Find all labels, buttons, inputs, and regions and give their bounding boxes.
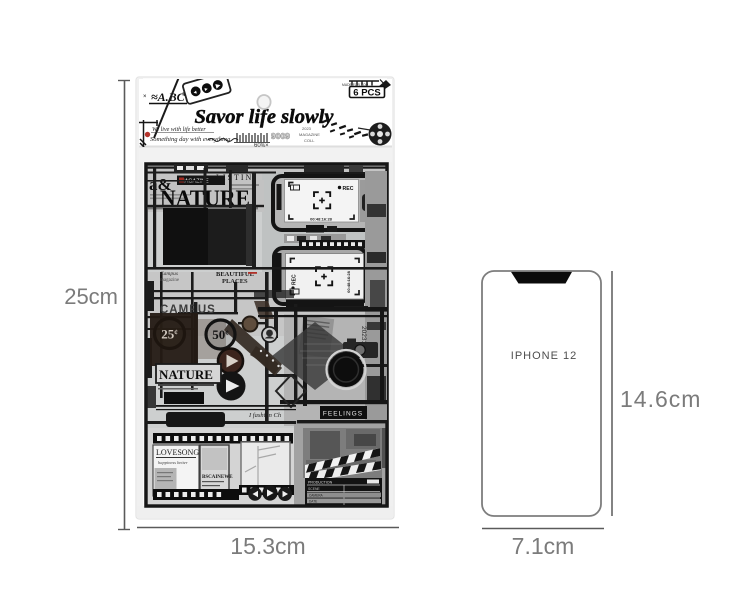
svg-text:We live with life better: We live with life better [152, 126, 206, 133]
svg-text:LOVESONG: LOVESONG [156, 448, 199, 457]
svg-text:PRODUCTION: PRODUCTION [308, 481, 333, 485]
svg-text:Something day with everything: Something day with everything [150, 136, 231, 143]
svg-text:BSCAINEWE: BSCAINEWE [202, 475, 233, 480]
svg-text:9009: 9009 [271, 131, 290, 141]
svg-text:PLACES: PLACES [222, 278, 248, 285]
svg-text:SCENE: SCENE [308, 487, 320, 491]
svg-text:magazine: magazine [160, 278, 180, 283]
svg-text:Campus: Campus [160, 271, 178, 277]
svg-text:DATE: DATE [309, 500, 317, 504]
svg-text:COLL: COLL [304, 138, 315, 143]
svg-text:REC: REC [343, 186, 354, 192]
svg-text:MAGAZINE: MAGAZINE [299, 132, 320, 137]
svg-text:00:48:16:28: 00:48:16:28 [346, 270, 351, 293]
svg-text:00:48:16:28: 00:48:16:28 [310, 217, 333, 222]
svg-text:happiness better: happiness better [158, 460, 188, 465]
svg-text:REC: REC [292, 274, 298, 285]
svg-text:FEELINGS: FEELINGS [323, 411, 363, 418]
svg-text:2023: 2023 [302, 126, 312, 131]
svg-text:6 PCS: 6 PCS [353, 88, 380, 99]
svg-text:NATURE: NATURE [159, 367, 213, 382]
svg-text:×: × [143, 94, 147, 100]
svg-text:I fashion Ch: I fashion Ch [248, 412, 281, 419]
svg-text:CAMERA: CAMERA [309, 493, 324, 497]
